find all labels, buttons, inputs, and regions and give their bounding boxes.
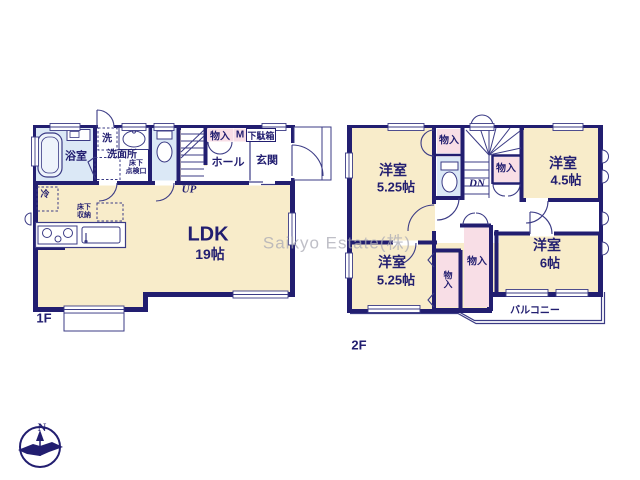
label-inspection-hatch: 床下 点検口: [126, 160, 147, 176]
sink-icon: [82, 227, 120, 243]
label-stairs-up: UP: [182, 184, 197, 197]
toilet-icon-1f: [157, 131, 172, 162]
label-bath: 浴室: [65, 151, 87, 164]
floorplan-2f: [346, 115, 609, 324]
kitchen-counter-icon: [36, 223, 126, 248]
label-room-2f-tl-name: 洋室: [379, 162, 407, 178]
vent-icon: [25, 213, 31, 225]
floorplan-page: Saikyo Estate(株) 浴室 洗 洗面所 床下 点検口 物入 M 下駄…: [0, 0, 640, 480]
label-room-2f-bl-name: 洋室: [378, 254, 406, 270]
entrance-porch: [294, 127, 331, 180]
label-closet-2f-mid: 物入: [496, 163, 516, 175]
label-floor-2f: 2F: [351, 339, 366, 354]
label-balcony: バルコニー: [510, 305, 560, 317]
terrace-outline: [64, 313, 124, 331]
label-entrance: 玄関: [256, 155, 278, 168]
label-ldk-size: 19帖: [195, 246, 225, 262]
label-room-2f-tl-size: 5.25帖: [377, 181, 415, 196]
watermark: Saikyo Estate(株): [263, 229, 411, 254]
label-fridge: 冷: [40, 189, 49, 199]
label-room-2f-br-name: 洋室: [533, 237, 561, 253]
label-room-2f-bl-size: 5.25帖: [377, 274, 415, 289]
label-meter-box: M: [234, 129, 247, 142]
label-underfloor-storage: 床下 収納: [77, 204, 91, 220]
floorplan-1f: [25, 110, 331, 331]
label-floor-1f: 1F: [36, 312, 51, 327]
label-room-2f-tr-size: 4.5帖: [550, 174, 581, 189]
label-closet-hall: 物入: [207, 129, 233, 142]
label-ldk-name: LDK: [187, 224, 228, 247]
label-stairs-down: DN: [469, 178, 485, 191]
compass-north-label: N: [38, 421, 47, 435]
label-closet-2f-top: 物入: [439, 135, 459, 147]
label-closet-2f-center: 物入: [467, 256, 487, 268]
label-room-2f-tr-name: 洋室: [549, 155, 577, 171]
label-room-2f-br-size: 6帖: [540, 257, 560, 272]
label-laundry: 洗: [102, 133, 112, 145]
toilet-icon-2f: [441, 162, 458, 192]
label-shoe-cabinet: 下駄箱: [246, 128, 276, 142]
label-closet-2f-vertical: 物入: [442, 272, 454, 291]
stove-icon: [38, 226, 77, 244]
label-hall: ホール: [212, 157, 245, 170]
